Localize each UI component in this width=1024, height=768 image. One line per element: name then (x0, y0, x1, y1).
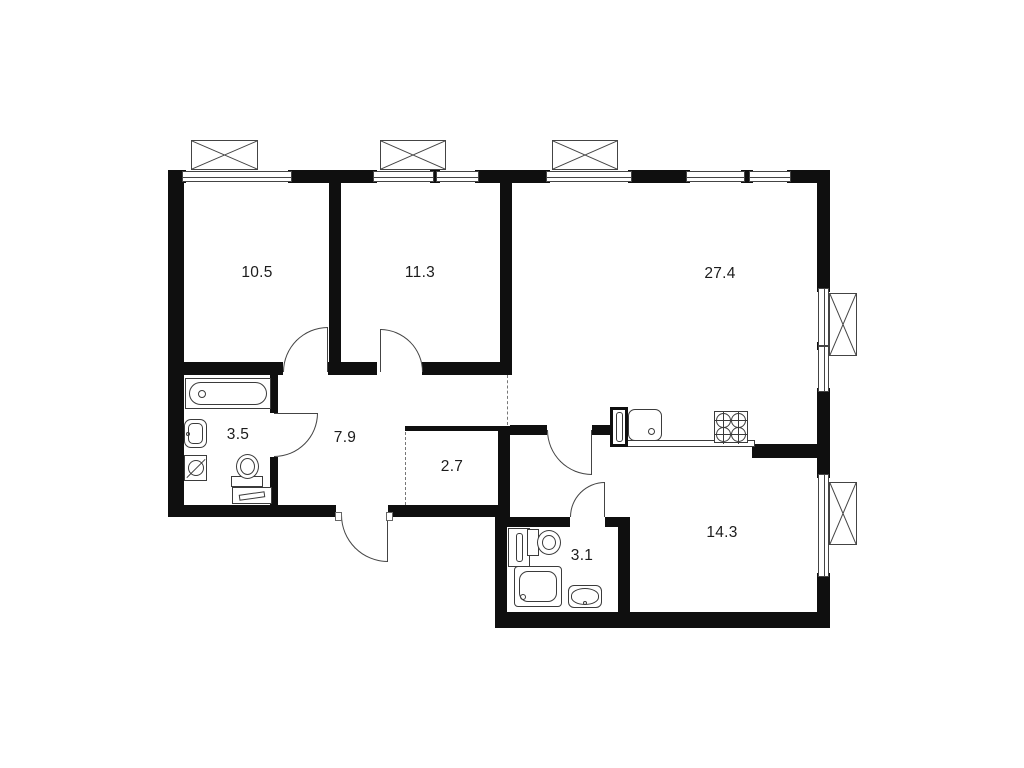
wall (510, 425, 547, 435)
window-icon (550, 170, 628, 183)
wall (329, 183, 341, 372)
window-icon (440, 170, 475, 183)
door-jamb (386, 512, 393, 521)
wall (388, 505, 507, 517)
door-swing-icon (283, 327, 328, 372)
kitchen-sink-icon (628, 409, 662, 441)
room-area-label: 7.9 (334, 429, 356, 447)
shower-icon (514, 566, 562, 607)
door-leaf (591, 430, 592, 475)
room-area-label: 2.7 (441, 458, 463, 476)
toilet-south-icon (231, 454, 263, 487)
cabinet-icon (232, 487, 272, 504)
room-area-label: 14.3 (706, 524, 737, 542)
window-icon (377, 170, 430, 183)
wall-sink-icon (184, 419, 207, 448)
door-swing-icon (570, 482, 605, 517)
wall (184, 362, 283, 375)
balcony-window-icon (380, 140, 446, 170)
wall (495, 612, 830, 628)
partition-wall (405, 426, 498, 431)
door-leaf (604, 482, 605, 517)
wall (618, 517, 630, 614)
door-leaf (274, 413, 318, 414)
door-swing-icon (341, 515, 388, 562)
wall (507, 517, 570, 527)
wall (500, 183, 512, 375)
door-leaf (380, 329, 381, 372)
door-leaf (327, 327, 328, 372)
basin-icon (568, 585, 602, 608)
wall (168, 170, 184, 517)
washing-machine-icon (184, 455, 207, 481)
room-area-label: 3.1 (571, 547, 593, 565)
stove-icon (714, 411, 748, 443)
door-swing-icon (274, 413, 318, 457)
zone-boundary-dashed (507, 375, 508, 425)
wall (498, 426, 510, 517)
balcony-window-icon (829, 293, 857, 356)
balcony-window-icon (552, 140, 618, 170)
window-icon (690, 170, 741, 183)
floor-plan: 10.511.327.43.57.92.73.114.3 (0, 0, 1024, 768)
door-swing-icon (547, 430, 592, 475)
room-area-label: 3.5 (227, 426, 249, 444)
wall (422, 362, 512, 375)
toilet-east-icon (527, 529, 562, 556)
window-icon (186, 170, 288, 183)
wall (752, 444, 830, 458)
door-swing-icon (380, 329, 423, 372)
zone-boundary-dashed (405, 432, 406, 505)
vent-shaft-icon (610, 407, 628, 447)
door-jamb (335, 512, 342, 521)
room-area-label: 10.5 (241, 264, 272, 282)
wall (495, 505, 507, 628)
window-icon (753, 170, 787, 183)
wall (270, 375, 278, 413)
balcony-window-icon (829, 482, 857, 545)
bathtub-icon (185, 378, 271, 409)
wall (328, 362, 377, 375)
room-area-label: 11.3 (405, 264, 435, 282)
room-area-label: 27.4 (704, 265, 735, 283)
wall (168, 505, 336, 517)
door-leaf (387, 515, 388, 562)
wall (592, 425, 610, 435)
balcony-window-icon (191, 140, 258, 170)
